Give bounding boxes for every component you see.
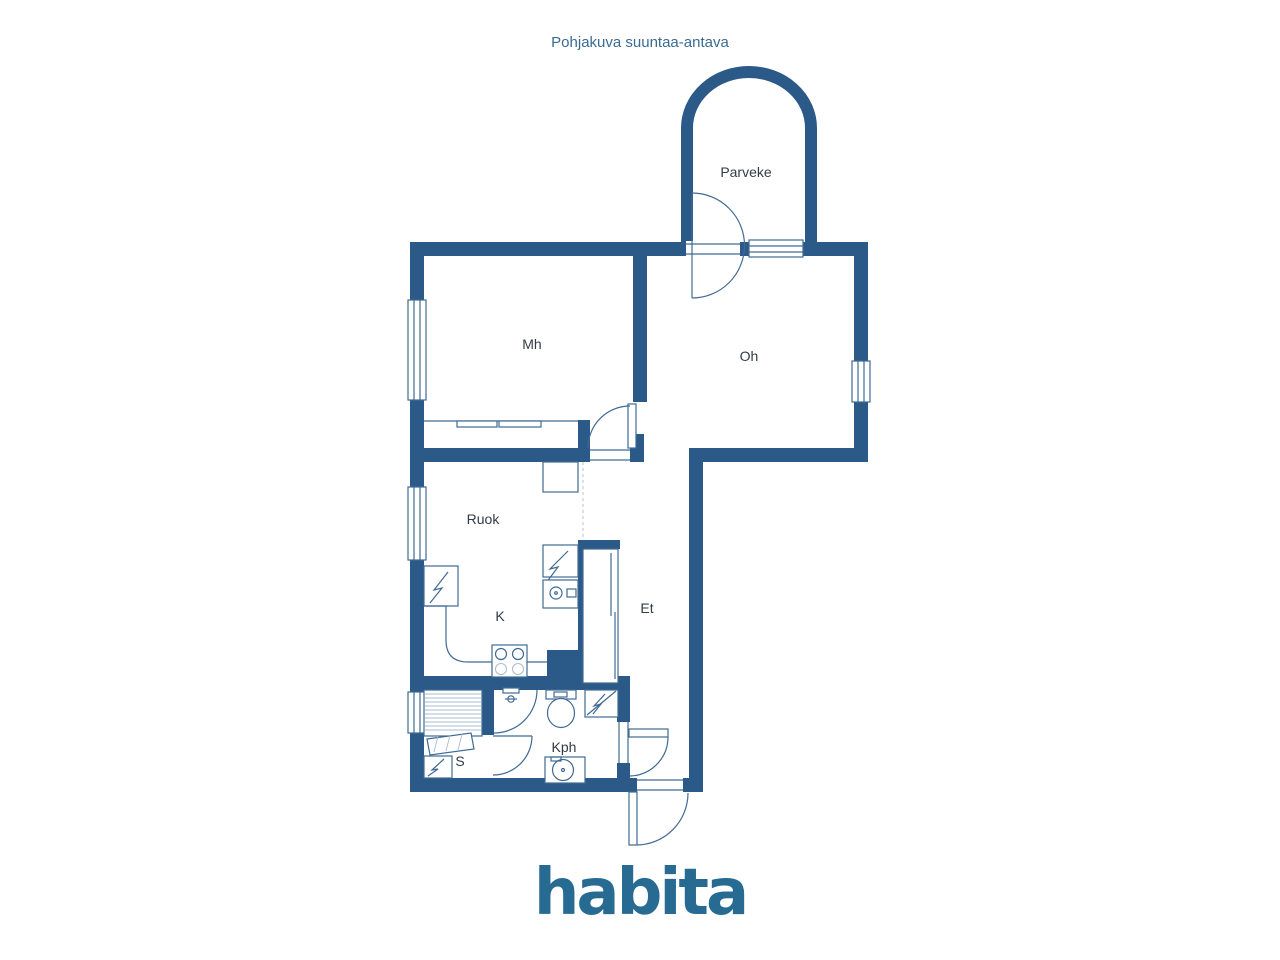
room-label-k: K	[495, 608, 505, 624]
brand-logo: habita	[0, 856, 1280, 930]
balcony-wall	[687, 72, 811, 246]
floorplan-page: Pohjakuva suuntaa-antava	[0, 0, 1280, 960]
dishwasher	[543, 545, 578, 583]
washing-machine	[585, 690, 618, 717]
kitchen-sink	[543, 580, 578, 608]
sauna-window	[408, 692, 426, 733]
wardrobe-line	[424, 421, 578, 427]
ruok-window	[408, 487, 426, 560]
sauna-bench	[424, 690, 482, 736]
room-label-et: Et	[640, 600, 653, 616]
washer-drum	[545, 757, 585, 783]
mh-door	[588, 404, 636, 448]
stove	[492, 645, 527, 677]
toilet	[546, 690, 576, 728]
cabinet	[543, 462, 578, 492]
oh-window	[852, 361, 870, 402]
sauna-heater	[424, 756, 452, 778]
floorplan-drawing: Parveke Mh Oh Ruok K Et S Kph	[0, 0, 1280, 960]
entrance-door	[629, 792, 688, 845]
shower-faucet	[503, 688, 519, 702]
duct-block	[547, 650, 582, 678]
room-label-ruok: Ruok	[467, 511, 501, 527]
bathroom-door	[629, 729, 668, 776]
shower-arc	[494, 690, 537, 733]
balcony-window	[749, 240, 803, 257]
hall-closet	[583, 549, 618, 683]
mh-window	[408, 300, 426, 400]
kitchen-counter	[424, 606, 547, 662]
room-label-mh: Mh	[522, 336, 541, 352]
room-label-parveke: Parveke	[720, 164, 772, 180]
room-label-kph: Kph	[552, 739, 577, 755]
room-label-s: S	[455, 753, 464, 769]
fridge	[424, 566, 458, 606]
room-label-oh: Oh	[740, 348, 759, 364]
sauna-door	[493, 736, 532, 775]
